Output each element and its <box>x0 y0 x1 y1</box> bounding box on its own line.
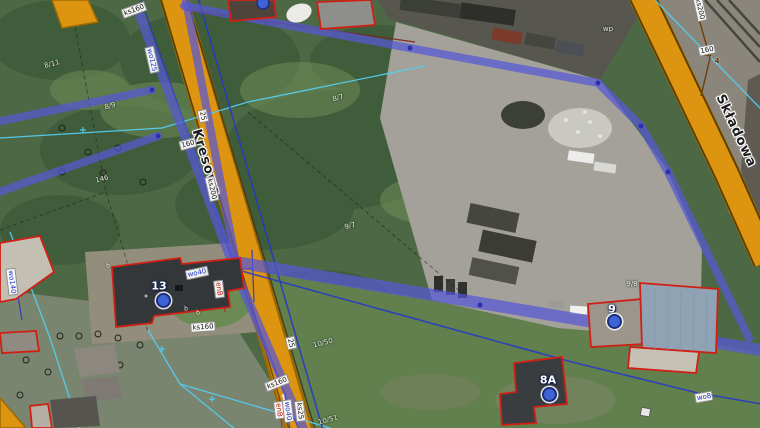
map-layers <box>0 0 760 428</box>
address-label-8a: 8A <box>540 374 556 387</box>
point-mark-b3: b <box>196 310 200 317</box>
utility-label-ks160-house13: ks160 <box>190 321 216 333</box>
map-canvas[interactable]: Kresowa Składowa ks160 wo125 25 160 ks20… <box>0 0 760 428</box>
address-marker-9[interactable] <box>607 314 622 329</box>
building-bottom-left-2 <box>30 404 52 428</box>
building-top-2 <box>317 0 375 29</box>
address-marker-top[interactable] <box>257 0 269 9</box>
building-bottom-right <box>628 347 699 373</box>
utility-label-enb-house13: enB <box>213 280 225 299</box>
point-mark-b1: b <box>106 263 110 270</box>
point-mark-b2: b <box>184 306 188 313</box>
parcel-label-wp: wp <box>603 25 613 33</box>
address-marker-8a[interactable] <box>542 387 557 402</box>
parcel-label-9-8: 9/8 <box>626 280 637 288</box>
utility-label-gas-4: 4 <box>715 57 720 65</box>
address-label-13: 13 <box>151 280 166 293</box>
building-bottom-left-1 <box>0 331 39 353</box>
address-marker-13[interactable] <box>156 293 171 308</box>
